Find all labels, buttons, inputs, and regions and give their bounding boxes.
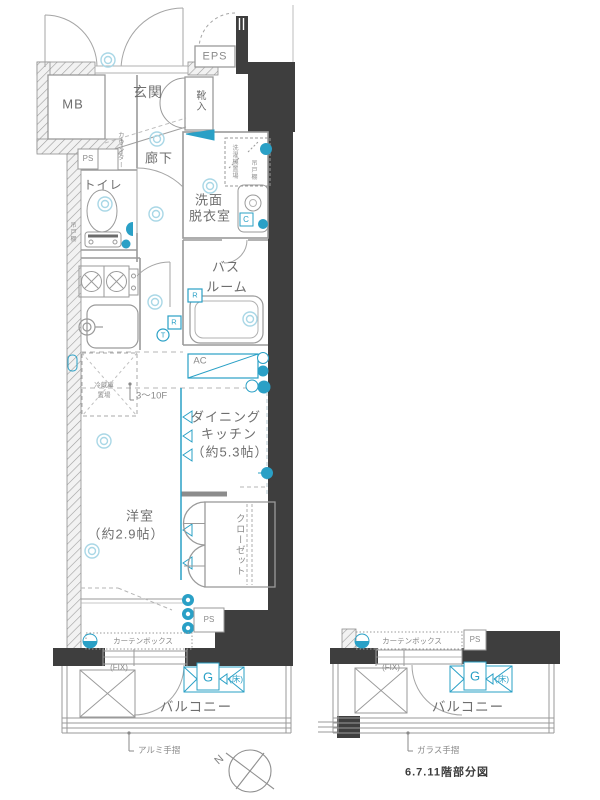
caption-partial-plan: 6.7.11階部分図: [405, 768, 489, 779]
room-label-washroom-2: 脱衣室: [189, 210, 231, 223]
label-counter: カウンター: [116, 131, 123, 169]
room-label-dk-2: キッチン: [201, 428, 257, 441]
label-floor-mark-main: (床): [229, 675, 243, 684]
western-room-marks: [81, 588, 224, 634]
label-t-mark: T: [161, 331, 166, 339]
room-label-balcony-main: バルコニー: [160, 700, 232, 714]
label-g-mark-partial: G: [470, 670, 480, 683]
label-r-mark-2: R: [171, 318, 176, 326]
room-label-western-1: 洋室: [126, 510, 154, 523]
label-fridge-1: 冷蔵庫: [94, 383, 114, 390]
room-label-washroom-1: 洗面: [195, 194, 223, 207]
room-label-eps: EPS: [202, 52, 227, 63]
label-fridge-2: 置場: [98, 393, 111, 400]
label-c-mark: C: [243, 216, 249, 224]
compass-icon: [226, 750, 274, 792]
label-fix-main: (FIX): [110, 664, 128, 672]
room-label-balcony-partial: バルコニー: [432, 700, 504, 714]
room-label-western-2: （約2.9帖）: [87, 528, 164, 541]
label-fix-partial: (FIX): [382, 664, 400, 672]
room-label-genkan: 玄関: [133, 85, 163, 99]
room-label-mb: MB: [62, 98, 84, 111]
label-hanging-shelf-toilet: 吊戸棚: [69, 222, 75, 243]
room-label-bath-1: バス: [212, 261, 240, 274]
label-floor-mark-partial: (床): [495, 675, 509, 684]
label-ps-partial: PS: [470, 636, 481, 644]
label-ac: AC: [193, 356, 206, 366]
closet: [184, 502, 276, 587]
label-ps-lower: PS: [204, 616, 215, 624]
label-handrail-main: アルミ手摺: [138, 746, 180, 755]
room-label-shoe-box: 靴入: [194, 90, 204, 112]
label-laundry-space: 洗濯機置場: [231, 145, 237, 180]
kitchen-sink: [79, 305, 138, 348]
floorplan-drawing: [0, 0, 600, 800]
room-label-dk-1: ダイニング: [191, 411, 261, 424]
label-ps-upper: PS: [83, 155, 94, 163]
room-label-bath-2: ルーム: [206, 281, 248, 294]
room-label-toilet: トイレ: [83, 179, 122, 191]
label-floor-range: 3～10F: [136, 391, 167, 401]
floor-range-leader: [128, 382, 134, 400]
room-label-closet: クローゼット: [234, 514, 244, 577]
room-label-hallway: 廊下: [145, 152, 173, 165]
floorplan-page: MB 玄関 靴入 EPS カウンター 廊下 PS トイレ 吊戸棚 洗面 脱衣室 …: [0, 0, 600, 800]
room-label-dk-3: （約5.3帖）: [191, 446, 268, 459]
label-hanging-shelf-wash: 吊戸棚: [250, 160, 256, 181]
label-curtain-box-main: カーテンボックス: [113, 637, 173, 645]
label-handrail-partial: ガラス手摺: [417, 746, 459, 755]
label-curtain-box-partial: カーテンボックス: [382, 637, 442, 645]
kitchen-stove: [79, 266, 138, 297]
label-r-mark-1: R: [192, 291, 197, 299]
label-g-mark-main: G: [203, 671, 213, 684]
